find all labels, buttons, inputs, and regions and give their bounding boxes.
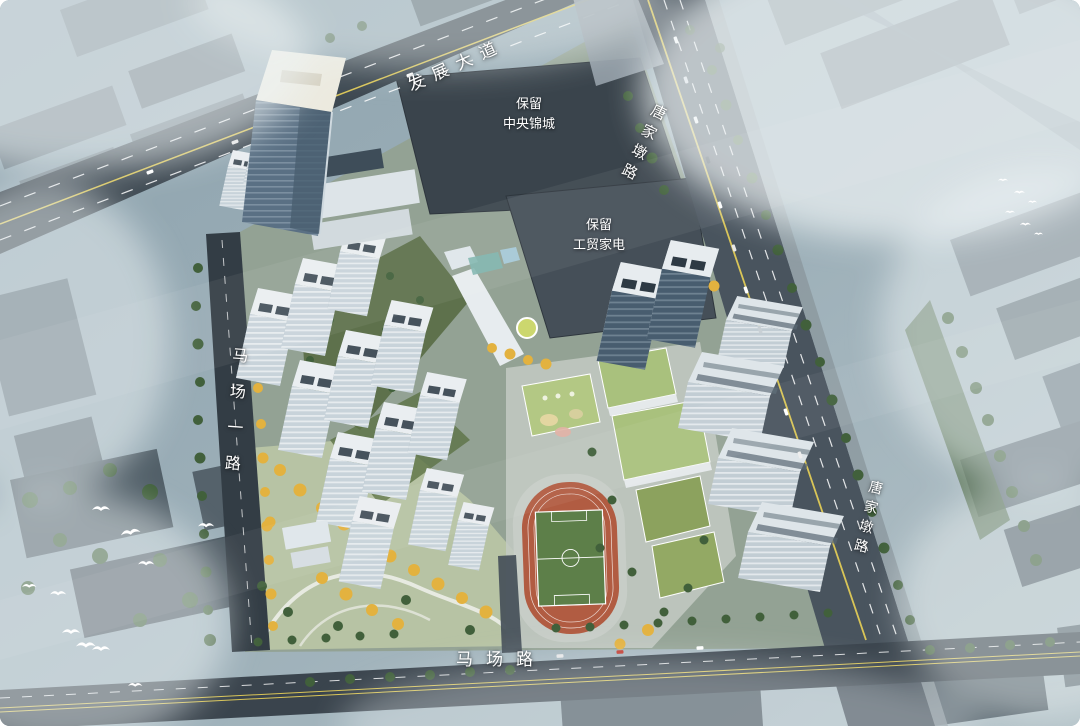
annotation-retained-central-jincheng: 保留 中央锦城 [489, 94, 569, 134]
annotation-line: 工贸家电 [557, 235, 641, 255]
annotation-line: 保留 [557, 215, 641, 235]
road-label-machang: 马场路 [456, 645, 546, 670]
annotation-line: 中央锦城 [489, 114, 569, 134]
site-plan-rendering: 发展大道 唐家墩路 唐家墩路 马场一路 马场路 保留 中央锦城 保留 工贸家电 [0, 0, 1080, 726]
annotation-retained-gongmao-appliances: 保留 工贸家电 [557, 215, 641, 255]
annotation-line: 保留 [489, 94, 569, 114]
kindergarten-dome [517, 318, 537, 338]
